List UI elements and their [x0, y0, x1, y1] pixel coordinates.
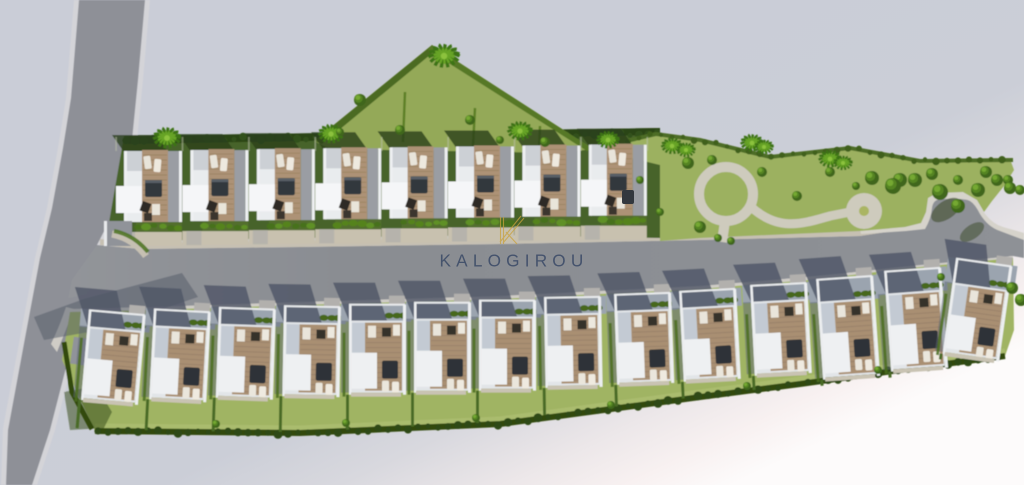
- svg-text:KALOGIROU: KALOGIROU: [440, 251, 589, 271]
